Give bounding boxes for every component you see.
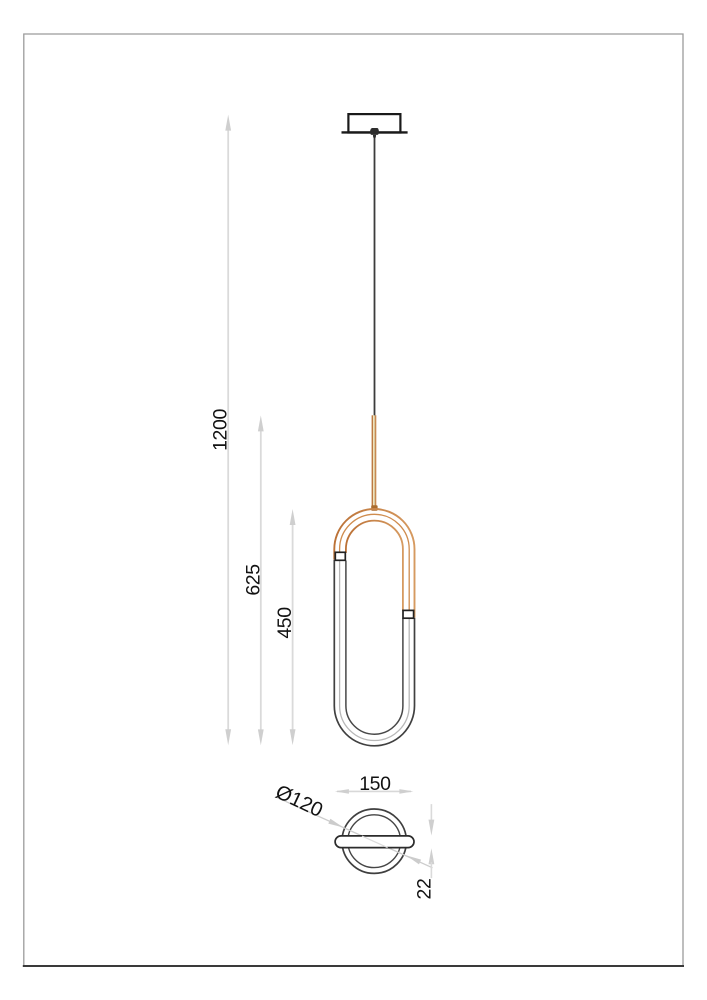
svg-text:22: 22 [414, 879, 436, 900]
svg-text:1200: 1200 [210, 409, 232, 451]
svg-text:450: 450 [274, 607, 296, 639]
svg-text:625: 625 [243, 564, 265, 596]
svg-text:150: 150 [359, 773, 391, 795]
